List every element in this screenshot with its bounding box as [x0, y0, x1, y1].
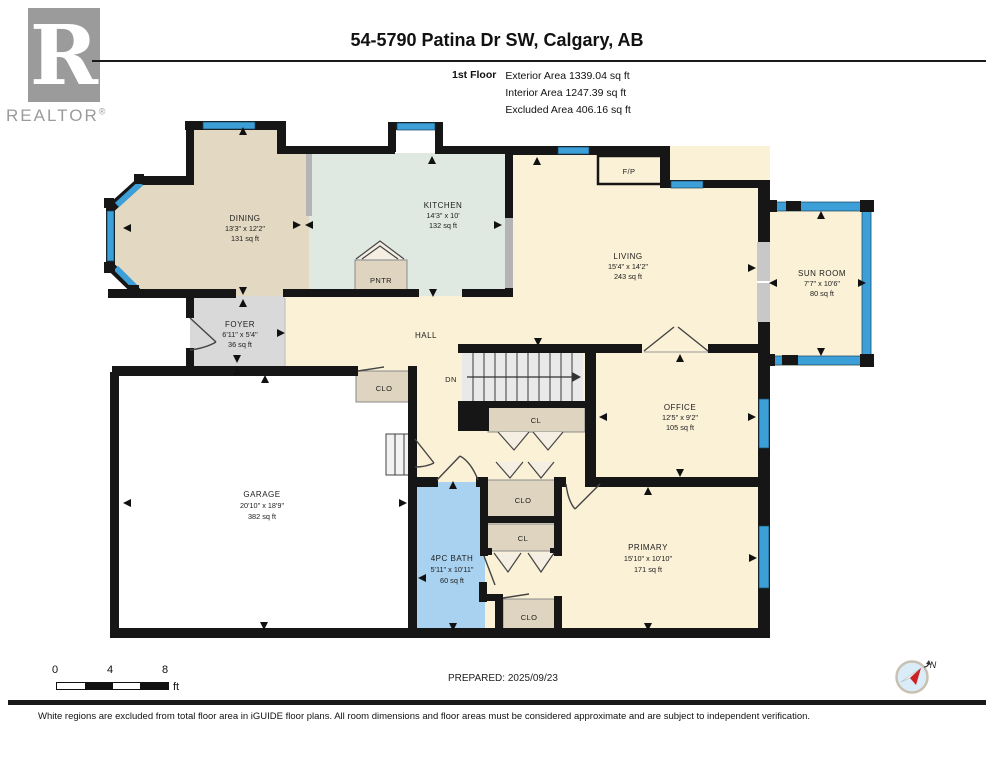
- bath-label: 4PC BATH: [431, 554, 474, 563]
- half-wall: [505, 218, 513, 288]
- kitchen-label: KITCHEN: [424, 201, 463, 210]
- wall: [110, 372, 119, 638]
- kitchen-dims: 14'3" x 10': [426, 211, 460, 220]
- wall: [458, 344, 642, 353]
- mid-closet-label: CL: [518, 534, 528, 543]
- scale-tick-4: 4: [107, 664, 113, 676]
- scale-segment: [85, 683, 113, 689]
- wall: [283, 146, 395, 154]
- prepared-date: PREPARED: 2025/09/23: [448, 673, 558, 684]
- footer-divider: [8, 700, 986, 705]
- wall: [554, 596, 562, 634]
- wall: [479, 594, 503, 601]
- wall: [104, 262, 115, 273]
- living-window: [558, 147, 589, 154]
- garage-label: GARAGE: [243, 490, 280, 499]
- wall: [495, 596, 503, 634]
- kitchen-area: 132 sq ft: [429, 221, 457, 230]
- wall: [138, 176, 194, 185]
- sliding-door: [757, 242, 770, 322]
- wall: [186, 348, 194, 372]
- wall: [408, 477, 438, 487]
- wall: [110, 628, 412, 638]
- primary-window: [759, 526, 769, 588]
- sunroom-window: [766, 202, 868, 211]
- wall: [408, 628, 770, 638]
- office-dims: 12'5" x 9'2": [662, 413, 698, 422]
- primary-label: PRIMARY: [628, 543, 668, 552]
- disclaimer-text: White regions are excluded from total fl…: [38, 711, 974, 722]
- living-area: 243 sq ft: [614, 272, 642, 281]
- compass-icon: N: [893, 655, 939, 697]
- kitchen-floor: [309, 151, 507, 296]
- lower-closet-label: CLO: [521, 613, 538, 622]
- bath-dims: 5'11" x 10'11": [431, 565, 474, 574]
- scale-segment: [113, 683, 141, 689]
- wall: [283, 289, 419, 297]
- wall: [708, 344, 768, 353]
- sunroom-dims: 7'7" x 10'6": [804, 279, 840, 288]
- scale-tick-8: 8: [162, 664, 168, 676]
- sunroom-area: 80 sq ft: [810, 289, 834, 298]
- office-window: [759, 399, 769, 448]
- dining-dims: 13'3" x 12'2": [225, 224, 265, 233]
- fireplace-label: F/P: [623, 167, 636, 176]
- wall: [435, 146, 513, 154]
- wall: [505, 146, 513, 218]
- wall: [585, 344, 596, 487]
- stairs-down-label: DN: [445, 375, 457, 384]
- understair-closet-label: CL: [531, 416, 541, 425]
- living-window: [671, 181, 703, 188]
- scale-tick-0: 0: [52, 664, 58, 676]
- hall-label: HALL: [415, 331, 437, 340]
- office-area: 105 sq ft: [666, 423, 694, 432]
- upper-closet-label: CLO: [515, 496, 532, 505]
- primary-dims: 15'10" x 10'10": [624, 554, 673, 563]
- office-label: OFFICE: [664, 403, 696, 412]
- dining-area: 131 sq ft: [231, 234, 259, 243]
- wall: [134, 174, 144, 184]
- wall: [762, 354, 775, 366]
- living-dims: 15'4" x 14'2": [608, 262, 648, 271]
- foyer-label: FOYER: [225, 320, 255, 329]
- sunroom-label: SUN ROOM: [798, 269, 846, 278]
- primary-area: 171 sq ft: [634, 565, 662, 574]
- scale-segment: [140, 683, 168, 689]
- wall: [505, 288, 513, 297]
- dining-label: DINING: [230, 214, 261, 223]
- wall: [408, 366, 417, 638]
- floor-plan-page: R REALTOR® 54-5790 Patina Dr SW, Calgary…: [0, 0, 994, 768]
- wall: [786, 201, 801, 211]
- wall: [388, 123, 396, 152]
- wall: [860, 200, 874, 212]
- staircase: [462, 350, 583, 403]
- wall: [860, 354, 874, 367]
- bath-area: 60 sq ft: [440, 576, 464, 585]
- foyer-area: 36 sq ft: [228, 340, 252, 349]
- wall: [764, 200, 777, 212]
- foyer-dims: 6'11" x 5'4": [222, 330, 258, 339]
- wall: [596, 477, 768, 487]
- wall: [458, 401, 489, 431]
- wall: [480, 516, 562, 523]
- scale-segment: [57, 683, 85, 689]
- wall: [186, 121, 194, 183]
- nook-window: [397, 123, 435, 130]
- garage-area: 382 sq ft: [248, 512, 276, 521]
- kitchen-nook-floor: [392, 128, 439, 153]
- dining-window: [203, 122, 255, 129]
- floor-plan-canvas: DINING 13'3" x 12'2" 131 sq ft KITCHEN 1…: [0, 0, 994, 768]
- pantry-label: PNTR: [370, 276, 392, 285]
- wall: [782, 355, 798, 365]
- garage-dims: 20'10" x 18'9": [240, 501, 284, 510]
- compass-north-label: N: [930, 660, 937, 670]
- bay-window: [107, 211, 114, 261]
- wall: [480, 548, 492, 555]
- sunroom-window: [766, 356, 868, 365]
- scale-unit: ft: [173, 681, 179, 693]
- half-wall: [306, 154, 312, 216]
- wall: [128, 285, 139, 296]
- scale-bar: [56, 682, 169, 690]
- living-label: LIVING: [613, 252, 642, 261]
- wall: [108, 289, 236, 298]
- wall: [104, 198, 114, 208]
- garage-closet-label: CLO: [376, 384, 393, 393]
